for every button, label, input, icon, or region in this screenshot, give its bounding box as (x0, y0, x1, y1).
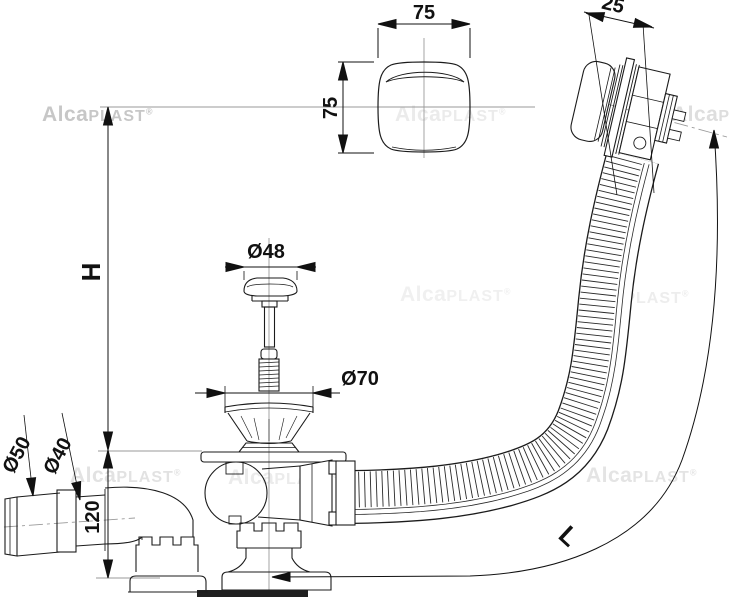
pipe-collar (57, 490, 76, 552)
dim-install-height-label: H (78, 263, 104, 282)
dim-plug-diameter (225, 263, 316, 281)
waste-flange-plate (201, 452, 346, 462)
elbow-bend (105, 487, 193, 537)
waste-body (205, 462, 267, 524)
elbow-locknut (136, 537, 198, 572)
drawing-canvas: AlcaPLAST® AlcaPLAST® AlcaPLAST® AlcaPLA… (0, 0, 729, 600)
hose-cone (300, 460, 332, 526)
flexible-overflow-hose (352, 155, 649, 514)
dim-base-height-label: 120 (83, 500, 103, 533)
waste-tailpipe (228, 548, 325, 572)
technical-drawing (0, 0, 729, 600)
waste-base-gasket (197, 590, 308, 597)
dim-knob-height-label: 75 (321, 97, 341, 119)
dim-strainer-diameter-label: Ø70 (341, 369, 379, 389)
dim-plug-diameter-label: Ø48 (247, 242, 285, 262)
drain-plug (244, 278, 297, 301)
dim-knob-width-label: 75 (413, 3, 435, 23)
dim-knob-height (338, 62, 374, 153)
waste-base (222, 572, 331, 590)
hose-union-nut (336, 461, 355, 525)
overflow-fitting-side (566, 49, 695, 171)
outlet-elbow (5, 487, 208, 592)
waste-assembly (197, 278, 355, 597)
